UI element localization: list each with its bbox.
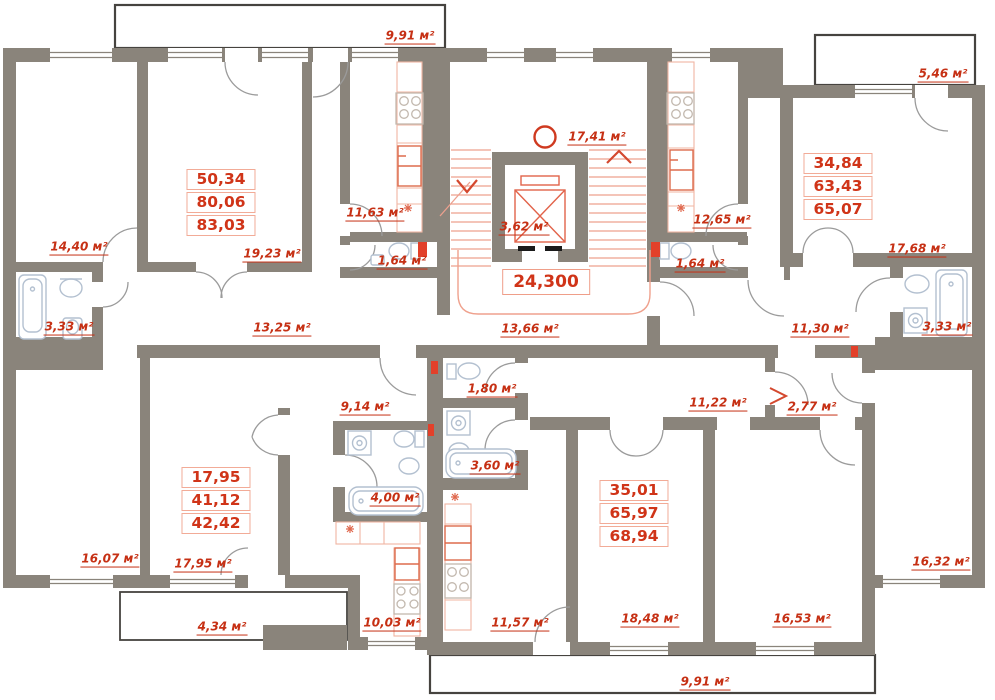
balcony-top-right (815, 35, 975, 85)
toilet-icon (394, 431, 424, 447)
toilet-icon (447, 363, 480, 379)
elevator-counterweight-icon (521, 176, 559, 185)
sink-icon (399, 458, 419, 474)
floor-plan-drawing (0, 0, 995, 700)
washing-machine-icon (447, 411, 470, 435)
washing-machine-icon (904, 308, 927, 333)
walls (3, 48, 985, 655)
bathtub-icon (936, 270, 967, 336)
sink-icon (905, 275, 929, 293)
kitchen-counter (394, 548, 420, 636)
elevator-door-leaf (518, 246, 535, 251)
sink-icon (60, 279, 82, 297)
kitchen-counter (445, 504, 471, 630)
toilet-icon (63, 318, 82, 339)
balcony-door-arc (225, 62, 258, 95)
kitchen-counter (336, 522, 420, 544)
bathtub-icon (446, 449, 516, 478)
washing-machine-icon (348, 431, 371, 455)
balcony-top-left (115, 5, 445, 48)
toilet-icon (660, 243, 691, 259)
balcony-bottom-center (430, 655, 875, 693)
sink-icon (371, 255, 384, 265)
bathtub-icon (19, 275, 46, 339)
french-door-arc (196, 272, 247, 298)
floor-plan-canvas: 9,91 м²14,40 м²19,23 м²11,63 м²1,64 м²3,… (0, 0, 995, 700)
elevator (515, 176, 565, 251)
bathroom-fixtures (19, 243, 967, 515)
toilet-icon (389, 243, 420, 259)
stairs-up-arrow-icon (607, 151, 631, 163)
elevator-door-leaf (545, 246, 562, 251)
lobby-outline (458, 250, 650, 314)
entrance-arrow-icon (770, 388, 786, 404)
bathtub-icon (349, 487, 423, 515)
column-symbol-icon (535, 127, 556, 148)
